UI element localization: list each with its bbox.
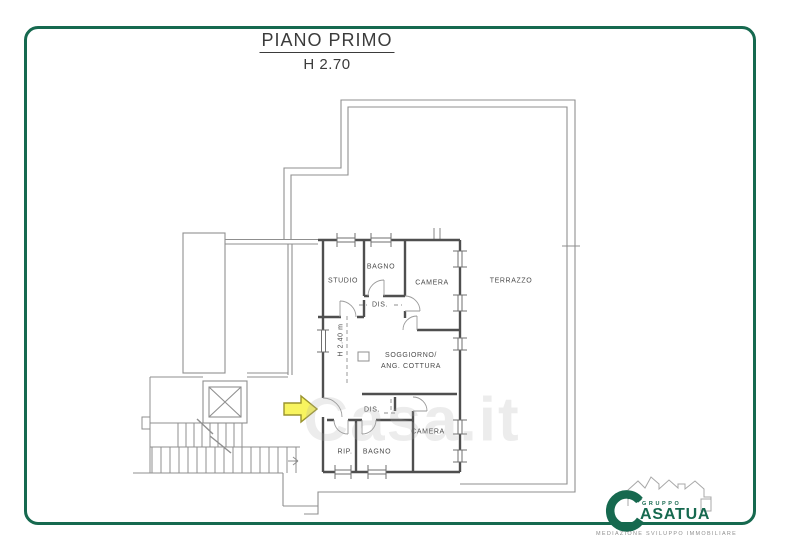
plan-header: PIANO PRIMO H 2.70 (259, 30, 394, 73)
logo-underline (598, 522, 714, 525)
room-label-camera-bottom: CAMERA (411, 429, 445, 436)
room-label-terrazzo: TERRAZZO (490, 278, 533, 285)
elevator-icon (203, 381, 247, 423)
soggiorno-line2: ANG. COTTURA (381, 361, 441, 372)
room-label-bagno-top: BAGNO (367, 264, 395, 271)
room-label-camera-top: CAMERA (415, 280, 449, 287)
brand-logo: GRUPPO ASATUA MEDIAZIONE SVILUPPO IMMOBI… (590, 470, 760, 545)
floor-plan-page: PIANO PRIMO H 2.70 (0, 0, 800, 554)
room-label-bagno-bottom: BAGNO (363, 449, 391, 456)
room-label-dis-bottom: DIS. (364, 407, 380, 414)
room-label-soggiorno: SOGGIORNO/ ANG. COTTURA (381, 350, 441, 372)
boiler-symbol (358, 352, 369, 361)
soggiorno-line1: SOGGIORNO/ (381, 350, 441, 361)
interior-height-label: H 2.40 m (338, 323, 345, 356)
room-label-dis-top: DIS. (372, 302, 388, 309)
logo-tagline: MEDIAZIONE SVILUPPO IMMOBILIARE (596, 531, 737, 537)
page-title: PIANO PRIMO (259, 30, 394, 53)
stairs-icon (142, 377, 300, 473)
room-label-rip: RIP. (337, 449, 352, 456)
entrance-arrow-icon (284, 396, 317, 422)
floor-height-label: H 2.70 (259, 56, 394, 73)
room-label-studio: STUDIO (328, 278, 358, 285)
